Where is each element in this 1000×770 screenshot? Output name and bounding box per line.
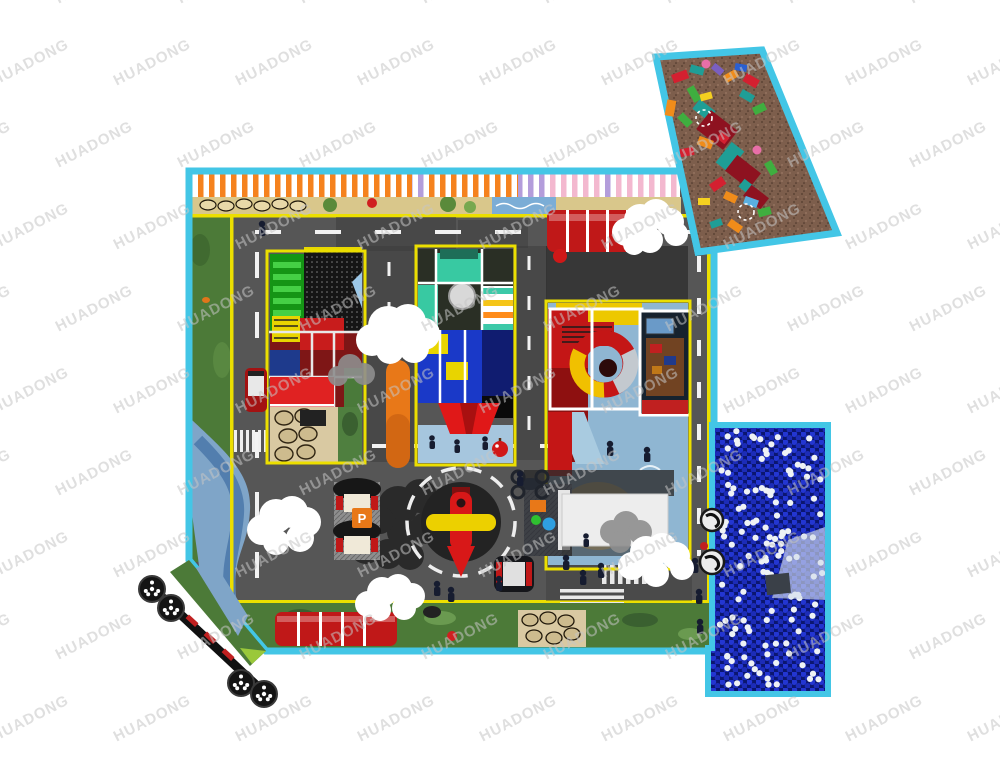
awning-strip (189, 174, 680, 197)
cherry-ball (553, 249, 567, 263)
playground-render: P (0, 0, 1000, 770)
mural-tree (323, 198, 337, 212)
mural-flower (367, 198, 377, 208)
cafe-tables: P (333, 478, 381, 560)
chair (336, 538, 343, 552)
scene: P (0, 0, 1000, 770)
green-ball (531, 515, 541, 525)
chair (371, 538, 378, 552)
table (344, 536, 370, 554)
orange-table-sign: P (352, 508, 372, 528)
chair (336, 496, 343, 510)
bush (190, 234, 210, 266)
stone-path (270, 407, 362, 463)
blue-panel (270, 350, 300, 377)
ball-blaster (701, 509, 723, 531)
bush (213, 342, 231, 378)
kiosk-sign (530, 500, 546, 512)
toy-car-red (245, 368, 267, 412)
mural-water (492, 197, 556, 215)
flower (202, 297, 210, 303)
ball-pit (700, 425, 828, 694)
table-sign-label: P (358, 511, 367, 526)
bottom-stone-path (518, 610, 586, 647)
mini-table (300, 410, 326, 426)
play-house (640, 311, 690, 415)
red-base (270, 377, 334, 407)
ball-washer (449, 283, 475, 309)
blue-ball (543, 518, 556, 531)
mural-tree (440, 196, 456, 212)
chair (371, 496, 378, 510)
mural-tree (464, 201, 476, 213)
center-play-structure (416, 246, 515, 465)
